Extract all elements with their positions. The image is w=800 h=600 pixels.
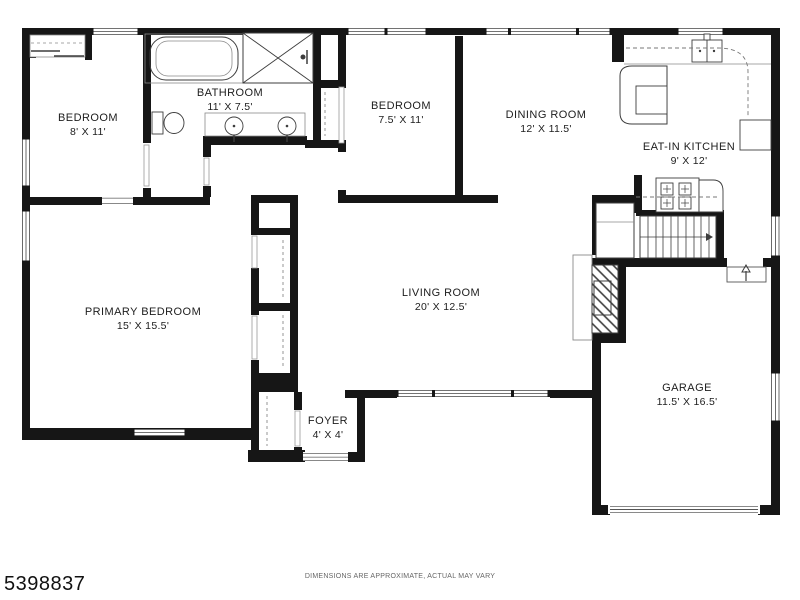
room-label-garage: GARAGE 11.5' X 16.5' bbox=[657, 381, 718, 409]
room-name: BEDROOM bbox=[58, 111, 118, 125]
room-dims: 11' X 7.5' bbox=[197, 100, 263, 114]
bedroom1-closet bbox=[30, 35, 85, 57]
listing-id: 5398837 bbox=[4, 573, 85, 596]
room-label-bedroom-1: BEDROOM 8' X 11' bbox=[58, 111, 118, 139]
window-landing-right bbox=[771, 214, 780, 258]
room-dims: 20' X 12.5' bbox=[402, 300, 480, 314]
room-name: FOYER bbox=[308, 414, 348, 428]
counter-right bbox=[740, 120, 771, 150]
hearth bbox=[573, 255, 592, 340]
window-living-south bbox=[396, 390, 550, 397]
room-label-bedroom-2: BEDROOM 7.5' X 11' bbox=[371, 99, 431, 127]
toilet bbox=[152, 112, 184, 134]
window-bedroom1-left bbox=[22, 137, 30, 188]
room-name: LIVING ROOM bbox=[402, 286, 480, 300]
room-dims: 11.5' X 16.5' bbox=[657, 395, 718, 409]
room-label-living-room: LIVING ROOM 20' X 12.5' bbox=[402, 286, 480, 314]
room-dims: 12' X 11.5' bbox=[506, 122, 587, 136]
room-name: GARAGE bbox=[657, 381, 718, 395]
room-label-foyer: FOYER 4' X 4' bbox=[308, 414, 348, 442]
window-bedroom1-top bbox=[91, 28, 140, 35]
room-dims: 15' X 15.5' bbox=[85, 319, 201, 333]
window-primary-left bbox=[22, 209, 30, 263]
room-name: BATHROOM bbox=[197, 86, 263, 100]
garage-entry-door bbox=[727, 265, 766, 282]
stove bbox=[656, 178, 699, 212]
room-name: BEDROOM bbox=[371, 99, 431, 113]
bathtub bbox=[150, 37, 238, 80]
disclaimer-text: DIMENSIONS ARE APPROXIMATE, ACTUAL MAY V… bbox=[305, 573, 495, 580]
counter-beside-stove bbox=[699, 180, 723, 212]
floor-plan: BEDROOM 8' X 11' BATHROOM 11' X 7.5' BED… bbox=[0, 0, 800, 600]
shower-head-icon bbox=[301, 55, 306, 60]
room-dims: 9' X 12' bbox=[643, 154, 735, 168]
window-bedroom2-top bbox=[346, 28, 428, 35]
window-primary-south bbox=[132, 429, 187, 436]
room-name: DINING ROOM bbox=[506, 108, 587, 122]
window-kitchen-top bbox=[676, 28, 725, 35]
window-garage-right bbox=[771, 371, 780, 423]
room-label-dining-room: DINING ROOM 12' X 11.5' bbox=[506, 108, 587, 136]
entry-door bbox=[303, 452, 348, 461]
room-label-primary-bedroom: PRIMARY BEDROOM 15' X 15.5' bbox=[85, 305, 201, 333]
floor-plan-drawing bbox=[0, 0, 800, 600]
faucet-icon bbox=[704, 34, 710, 40]
pantry bbox=[596, 203, 634, 258]
room-label-eat-in-kitchen: EAT-IN KITCHEN 9' X 12' bbox=[643, 140, 735, 168]
room-label-bathroom: BATHROOM 11' X 7.5' bbox=[197, 86, 263, 114]
chimney-hatch bbox=[592, 265, 618, 333]
room-dims: 8' X 11' bbox=[58, 125, 118, 139]
kitchen-fixtures bbox=[620, 34, 771, 212]
room-name: PRIMARY BEDROOM bbox=[85, 305, 201, 319]
fireplace-chimney bbox=[573, 255, 618, 340]
opening-bedroom-wall bbox=[102, 198, 133, 205]
room-name: EAT-IN KITCHEN bbox=[643, 140, 735, 154]
shower bbox=[243, 33, 313, 83]
room-dims: 4' X 4' bbox=[308, 428, 348, 442]
window-dining-top bbox=[484, 28, 612, 35]
room-dims: 7.5' X 11' bbox=[371, 113, 431, 127]
